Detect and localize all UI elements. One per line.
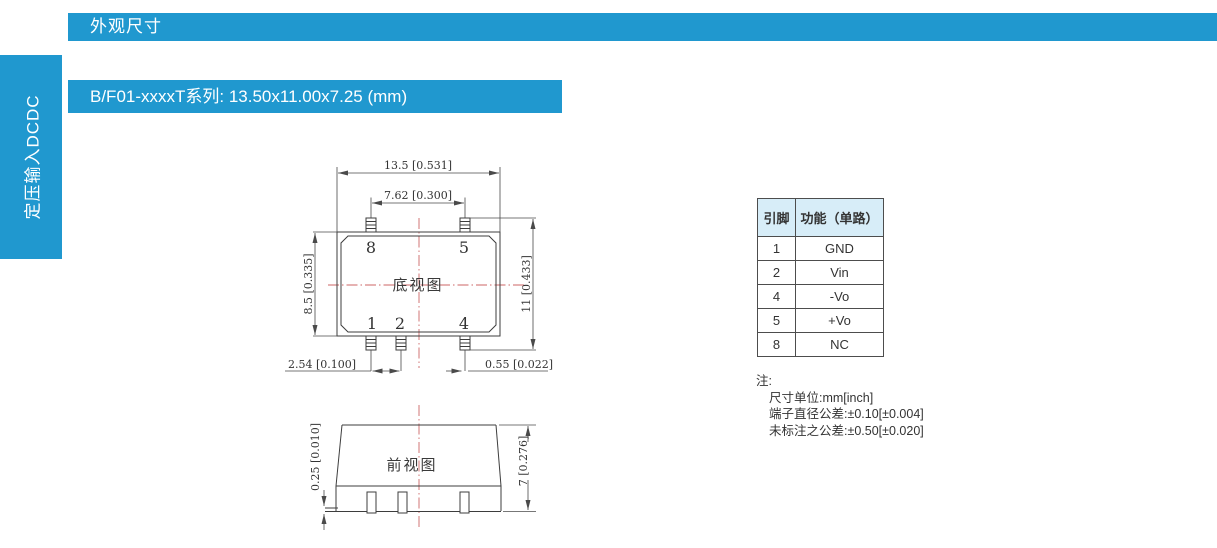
dimension-drawing: 8 5 1 2 4 底视图 13.5 [0.531] 7.62 [0.300] … [275,158,560,535]
front-pin-1 [367,492,376,513]
function-cell: NC [796,333,884,357]
dim-pin-span: 7.62 [0.300] [372,189,464,203]
pin-number-2: 2 [395,314,405,333]
bottom-view: 8 5 1 2 4 底视图 13.5 [0.531] 7.62 [0.300] … [285,159,553,371]
pin-number-4: 4 [459,314,469,333]
function-cell: GND [796,237,884,261]
pin-cell: 1 [758,237,796,261]
notes-block: 注: 尺寸单位:mm[inch] 端子直径公差:±0.10[±0.004] 未标… [756,373,924,439]
function-cell: -Vo [796,285,884,309]
dim-label-standoff: 0.25 [0.010] [309,423,322,491]
pin-1-bottom [366,336,376,371]
note-line-terminal-tolerance: 端子直径公差:±0.10[±0.004] [769,406,924,423]
dim-label-pin-pitch: 2.54 [0.100] [288,358,356,371]
pin-4-bottom [460,336,470,371]
page-section-header: 外观尺寸 [68,13,1217,41]
sidebar-category-label: 定压输入DCDC [19,94,44,219]
view-label-bottom: 底视图 [392,276,443,294]
dim-body-height: 8.5 [0.335] [302,232,337,336]
table-row: 4 -Vo [758,285,884,309]
pin-number-1: 1 [367,314,377,333]
pin-table-header-function: 功能（单路） [796,199,884,237]
pin-cell: 5 [758,309,796,333]
dim-standoff: 0.25 [0.010] [309,423,324,530]
note-line-general-tolerance: 未标注之公差:±0.50[±0.020] [769,423,924,440]
dim-front-height: 7 [0.276] [499,425,536,512]
pin-number-8: 8 [366,238,376,257]
dim-label-pin-span: 7.62 [0.300] [384,189,452,202]
dim-overall-height: 11 [0.433] [470,218,536,350]
series-title-label: B/F01-xxxxT系列: 13.50x11.00x7.25 (mm) [90,87,407,106]
table-row: 5 +Vo [758,309,884,333]
front-pin-2 [398,492,407,513]
pin-number-5: 5 [459,238,469,257]
pin-function-table: 引脚 功能（单路） 1 GND 2 Vin 4 -Vo 5 +Vo 8 NC [757,198,884,357]
series-title-bar: B/F01-xxxxT系列: 13.50x11.00x7.25 (mm) [68,80,562,113]
pin-cell: 2 [758,261,796,285]
table-row: 2 Vin [758,261,884,285]
pin-cell: 8 [758,333,796,357]
pin-2-bottom [396,336,406,371]
function-cell: Vin [796,261,884,285]
pin-cell: 4 [758,285,796,309]
notes-title: 注: [756,373,924,390]
dim-label-body-width: 13.5 [0.531] [384,159,452,172]
sidebar-category-tab: 定压输入DCDC [0,55,62,259]
dim-label-body-height: 8.5 [0.335] [302,253,315,314]
table-row: 8 NC [758,333,884,357]
view-label-front: 前视图 [386,456,437,474]
pin-table-header-row: 引脚 功能（单路） [758,199,884,237]
dim-pin-diameter: 0.55 [0.022] [446,358,553,371]
table-row: 1 GND [758,237,884,261]
front-pin-4 [460,492,469,513]
function-cell: +Vo [796,309,884,333]
dim-label-overall-height: 11 [0.433] [520,255,533,313]
section-header-label: 外观尺寸 [90,17,162,36]
note-line-units: 尺寸单位:mm[inch] [769,390,924,407]
dim-label-pin-diameter: 0.55 [0.022] [485,358,553,371]
front-view: 前视图 0.25 [0.010] 7 [0.276] [309,405,536,530]
dim-pin-pitch: 2.54 [0.100] [285,358,400,371]
dim-label-front-height: 7 [0.276] [517,436,530,487]
pin-table-header-pin: 引脚 [758,199,796,237]
